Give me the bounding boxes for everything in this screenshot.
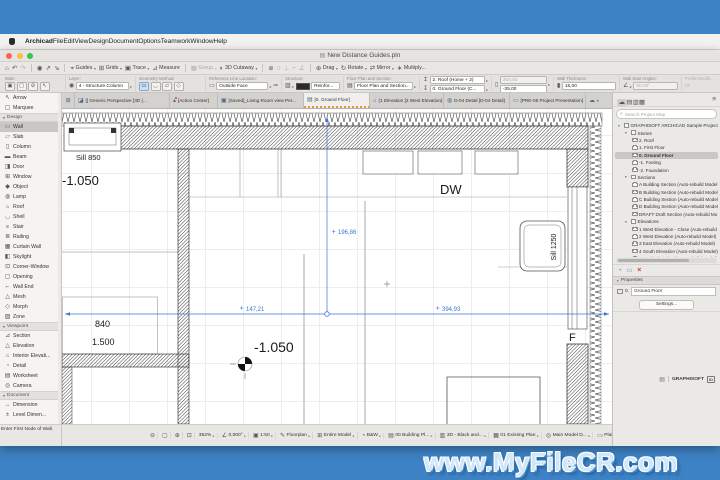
toolbar-item-separator[interactable] — [185, 64, 186, 72]
collapse-caret-icon: ▾ — [617, 279, 619, 283]
toolbar-item-favorites[interactable]: ◉ — [37, 65, 43, 72]
tool-icon: ◍ — [4, 194, 11, 200]
archicad-window: ▤New Distance Guides.pln ⌂ ↶ ↷ ◉ — [0, 50, 720, 446]
left-column: ↖ Arrow ▢ Marquee ▾ Design ▭ — [0, 93, 62, 446]
folder-icon — [632, 183, 638, 187]
chevron-icon: ▸ — [308, 434, 310, 438]
quick-option-layer-combination[interactable]: ▤ 00 Building Pl... ▸ — [386, 432, 435, 439]
settings-row: Settings... — [613, 298, 720, 311]
main-tool-suspend-groups[interactable]: ⊘ — [28, 82, 38, 91]
properties-header[interactable]: ▾ Properties — [613, 276, 720, 285]
chevron-icon: ▸ — [484, 434, 486, 438]
toolbar-item-guides[interactable]: ⌖ Guides ▾ — [70, 65, 95, 72]
folder-icon — [632, 161, 638, 165]
quick-option-structure-display[interactable]: ⊞ Entire Model ▸ — [315, 432, 357, 439]
toolbar-icon: ⊕ — [316, 65, 321, 72]
tree-item-elev-west[interactable]: 2 West Elevation (Auto-rebuild Model) — [615, 233, 718, 240]
tool-arrow[interactable]: ↖ Arrow — [0, 93, 61, 103]
menu-teamwork[interactable]: Teamwork — [161, 38, 191, 45]
toolbar-item-find-select[interactable]: ◌ — [277, 65, 281, 72]
menu-view[interactable]: View — [75, 38, 89, 45]
toolbar-icon: ⌂ — [5, 65, 9, 72]
tree-item-elev-west-close[interactable]: 1 West Elevation - Close (Auto-rebuild I — [615, 225, 718, 232]
left-dimension: 147,21 — [246, 307, 265, 313]
thickness-field[interactable]: 15,00 — [562, 82, 616, 90]
tree-item-story-footing[interactable]: -1. Footing — [615, 159, 718, 166]
tree-item-section-d[interactable]: D Building Section (Auto-rebuild Model — [615, 203, 718, 210]
quick-option-orientation[interactable]: ∠ 0,000° ▸ — [220, 432, 249, 439]
tree-item-sections[interactable]: ▾ Sections — [615, 174, 718, 181]
quick-option-dimension-style[interactable]: ▭ Plain Millimeter ▸ — [595, 432, 612, 439]
tool-roof[interactable]: ⌂ Roof — [0, 202, 61, 212]
menu-archicad[interactable]: Archicad — [25, 38, 53, 45]
tool-icon: ◧ — [4, 254, 11, 260]
project-map-tree: ▾ GRAPHISOFT ARCHICAD Sample Project - H… — [613, 121, 720, 257]
toolbar-item-separator[interactable] — [31, 64, 32, 72]
main-tool-arrow-tool[interactable]: ↖ — [40, 82, 50, 91]
macos-menu-bar: ArchicadFileEditViewDesignDocumentOption… — [0, 34, 720, 50]
navigator-action-viewpoint-settings[interactable]: ◔ — [618, 268, 622, 274]
story-folder-icon — [617, 289, 623, 294]
tool-icon: ▤ — [4, 373, 11, 379]
quick-option-renovation-filter[interactable]: ◔ B&W ▸ — [360, 433, 385, 439]
tool-icon: ◆ — [4, 184, 11, 190]
structure-select[interactable]: Reinfor... — [311, 82, 340, 90]
elevation-offset-icon: ▯ — [495, 82, 498, 88]
chevron-down-icon: ▾ — [336, 66, 338, 71]
tool-lamp[interactable]: ◍ Lamp — [0, 192, 61, 202]
main-toolbar: ⌂ ↶ ↷ ◉ ⇗ — [0, 62, 720, 75]
toolbar-item-link[interactable]: ⊚ — [268, 65, 273, 72]
tab-tab-list-dropdown[interactable]: ☁ ▾ — [586, 93, 606, 108]
tree-item-story-first-floor[interactable]: 1. First Floor — [615, 144, 718, 151]
tool-shell[interactable]: ◡ Shell — [0, 212, 61, 222]
tool-detail[interactable]: ◔ Detail — [0, 361, 61, 371]
upper-cabinets — [363, 151, 518, 174]
brand-label: GRAPHISOFT — [672, 377, 704, 382]
layer-select[interactable]: 4 - Structure.Column — [76, 82, 129, 90]
tool-icon: ◎ — [4, 383, 11, 389]
tab-icon: ▤ — [307, 97, 312, 103]
toolbar-icon: ∠ — [299, 65, 305, 72]
tab-tab-living-room-view[interactable]: ▣ [Saved]_Living Room view Per... — [218, 93, 304, 108]
search-icon: ⌕ — [620, 111, 623, 117]
tool-icon: ⌂ — [4, 353, 11, 359]
tab-tab-ground-floor[interactable]: ▤ [0. Ground Floor] — [304, 93, 370, 108]
settings-button[interactable]: Settings... — [639, 300, 694, 310]
toolbar-item-mirror[interactable]: ⇄ Mirror ▾ — [370, 65, 394, 72]
geometry-curved[interactable]: ◡ — [151, 82, 161, 91]
quick-option-icon: ◎ — [546, 432, 551, 439]
top-story-select[interactable]: 2. Roof (Home + 2) — [430, 76, 485, 84]
tree-item-story-ground-floor[interactable]: 0. Ground Floor — [615, 152, 718, 159]
tree-item-elev-east[interactable]: 3 East Elevation (Auto-rebuild Model) — [615, 240, 718, 247]
toolbar-icon: ⌖ — [70, 65, 74, 72]
tab-icon: ◪ — [78, 98, 83, 104]
quick-option-zoom-window[interactable]: ▢ — [160, 432, 171, 439]
eye-icon[interactable]: ◉ — [69, 83, 74, 89]
tree-item-section-c[interactable]: C Building Section (Auto-rebuild Model — [615, 196, 718, 203]
toolbar-item-guide-angle[interactable]: ∠ — [299, 65, 305, 72]
quick-option-icon: ▢ — [162, 432, 168, 439]
toolbar-item-separator[interactable] — [310, 64, 311, 72]
tree-caret-icon: ▾ — [625, 175, 629, 179]
search-input[interactable] — [625, 112, 713, 117]
tool-icon: ↖ — [4, 95, 11, 101]
quick-option-graphic-override[interactable]: ◎ Main Model D... ▸ — [544, 432, 593, 439]
chevron-down-icon: ▾ — [147, 66, 149, 71]
tree-item-section-b[interactable]: B Building Section (Auto-rebuild Model — [615, 189, 718, 196]
toolbar-icon: ↷ — [20, 65, 25, 72]
toolbar-icon: ⊞ — [99, 65, 104, 72]
minimize-button[interactable] — [17, 53, 23, 59]
tree-item-elevations[interactable]: ▾ Elevations — [615, 218, 718, 225]
folder-icon — [631, 131, 637, 135]
tree-horizontal-scrollbar[interactable] — [616, 258, 717, 263]
interior-wall — [178, 149, 189, 424]
dim-840-label: 840 — [95, 319, 110, 329]
apple-icon[interactable] — [9, 38, 15, 45]
chevron-icon: ▸ — [486, 78, 488, 83]
toolbar-icon: ⊚ — [268, 65, 273, 72]
composite-icon[interactable]: ▥ — [285, 83, 291, 89]
toolbar-icon: ↶ — [12, 65, 17, 72]
toolbar-item-guide-segment[interactable]: ⊥ — [284, 65, 290, 72]
tool-icon: ▦ — [4, 244, 11, 250]
right-insulation — [590, 126, 601, 424]
tree-item-section-a[interactable]: A Building Section (Auto-rebuild Model — [615, 181, 718, 188]
top-offset-field[interactable]: 303,00 — [500, 76, 547, 84]
crosshair-cursor — [384, 281, 390, 287]
infobox-bottom-top: Bottom and Top: ▯ 303,00 -35,00 ▸ — [492, 76, 554, 91]
quick-option-zoom-level[interactable]: 352% ▸ — [197, 433, 218, 438]
tool-object[interactable]: ◆ Object — [0, 182, 61, 192]
tool-icon: ◔ — [4, 363, 11, 369]
structure-preview — [296, 83, 310, 90]
tool-morph[interactable]: ◇ Morph — [0, 302, 61, 312]
navigator-footer: ▤ GRAPHISOFT ID — [613, 311, 720, 446]
tool-viewpoint-section[interactable]: ▾ Viewpoint — [0, 322, 61, 331]
toolbar-icon: ↻ — [341, 65, 346, 72]
tool-dimension[interactable]: ↔ Dimension — [0, 400, 61, 410]
tree-caret-icon: ▾ — [625, 131, 629, 135]
right-dimension: 394,93 — [442, 307, 461, 313]
tool-mesh[interactable]: △ Mesh — [0, 292, 61, 302]
toolbar-item-undo[interactable]: ↶ — [12, 65, 17, 72]
chevron-icon: ▸ — [292, 84, 294, 89]
main-area: ↖ Arrow ▢ Marquee ▾ Design ▭ — [0, 93, 720, 446]
quick-option-zoom-out[interactable]: ⊖ — [148, 432, 158, 439]
tab-icon: ▭ — [513, 98, 518, 104]
tool-beam[interactable]: ▬ Beam — [0, 152, 61, 162]
tool-opening[interactable]: ▢ Opening — [0, 272, 61, 282]
quick-option-icon: ▦ — [493, 432, 499, 439]
folder-icon — [632, 168, 638, 172]
dim-1500-label: 1.500 — [92, 337, 115, 347]
quick-option-icon: ▤ — [388, 432, 394, 439]
angle-field[interactable]: 90,00° — [633, 82, 678, 90]
tool-door[interactable]: ◨ Door — [0, 162, 61, 172]
tool-icon: ◨ — [4, 164, 11, 170]
folder-icon — [632, 227, 638, 231]
geometry-straight[interactable]: ▭ — [139, 82, 149, 91]
title-bar[interactable]: ▤New Distance Guides.pln — [0, 50, 720, 62]
menu-document[interactable]: Document — [109, 38, 139, 45]
chevron-icon: ▸ — [353, 434, 355, 438]
navigator-header: ☁▤▥▦ ≡ — [613, 93, 720, 107]
story-name-field[interactable] — [631, 287, 716, 296]
toolbar-item-3d-cutaway[interactable]: ◐ 3D Cutaway ▾ — [220, 65, 258, 72]
tool-icon: ≣ — [4, 234, 11, 240]
tool-icon: ⊞ — [4, 174, 11, 180]
tab-tab-d04-detail[interactable]: ◍ D-04 Detail [D-04 Detail] — [444, 93, 510, 108]
toolbar-item-measure[interactable]: ⊿ Measure — [152, 65, 180, 72]
id-badge: ID — [707, 376, 715, 383]
navigator-action-delete[interactable]: × — [637, 267, 641, 274]
toolbar-icon: ◉ — [37, 65, 43, 72]
tree-caret-icon: ▾ — [625, 220, 629, 224]
quick-option-icon: ▥ — [440, 432, 446, 439]
tool-camera[interactable]: ◎ Camera — [0, 381, 61, 391]
toolbar-item-trace[interactable]: ▣ Trace ▾ — [125, 65, 149, 72]
floor-plan-canvas[interactable]: 196,86 147,21 394,93 Sill 850 -1.050 840… — [62, 109, 612, 424]
quick-option-floor-plan-cut-plane[interactable]: ✎ Floorplan ▸ — [278, 432, 313, 439]
level-left-label: -1.050 — [62, 173, 99, 188]
tab-icon: ▣ — [221, 98, 226, 104]
quick-option-zoom-in[interactable]: ⊕ — [173, 432, 183, 439]
toolbar-icon: ⊿ — [152, 65, 157, 72]
tab-tab-west-elevation[interactable]: ⌂ (1 Elevation [2 West Elevation] — [370, 93, 444, 108]
tab-icon: ☁ — [589, 98, 595, 104]
close-button[interactable] — [6, 53, 12, 59]
top-wall — [120, 126, 588, 149]
toolbar-item-guide-corner[interactable]: ⌐ — [292, 65, 296, 72]
tree-item-elev-north[interactable]: 5 North Elevation (Auto-rebuild Model) — [615, 255, 718, 257]
quick-option-icon: ⊡ — [187, 432, 192, 439]
tool-stair[interactable]: ≡ Stair — [0, 222, 61, 232]
navigator-palette: ☁▤▥▦ ≡ ⌕ ▾ GRAPHISOFT ARCHICAD Sample Pr… — [612, 93, 720, 446]
tool-document-section[interactable]: ▾ Document — [0, 391, 61, 400]
chevron-icon: ▸ — [486, 87, 488, 92]
tab-tab-pre05-presentation[interactable]: ▭ [PRE-05 Project Presentation] — [510, 93, 586, 108]
tool-icon: ⊿ — [4, 333, 11, 339]
watermark: www.MyFileCR.com — [424, 447, 678, 478]
tool-corner-window[interactable]: ⊡ Corner-Window — [0, 262, 61, 272]
right-wall-top — [567, 149, 588, 187]
toolbar-icon: ⇄ — [370, 65, 375, 72]
toolbar-icon: ◐ — [220, 65, 224, 72]
chevron-icon: ▸ — [213, 434, 215, 438]
chevron-down-icon: ▾ — [365, 66, 367, 71]
toolbar-icon: ⌐ — [292, 65, 296, 72]
tree-item-project-root[interactable]: ▾ GRAPHISOFT ARCHICAD Sample Project - H — [615, 122, 718, 129]
tool-wall[interactable]: ▭ Wall — [0, 122, 61, 132]
reference-line-select[interactable]: Outside Face — [216, 82, 268, 90]
tool-railing[interactable]: ≣ Railing — [0, 232, 61, 242]
quick-option-scale[interactable]: ▣ 1:50 ▸ — [251, 432, 276, 439]
section-caret-icon: ▾ — [3, 324, 5, 329]
sink — [520, 221, 565, 271]
folder-icon — [631, 175, 637, 179]
toolbar-item-rotate[interactable]: ↻ Rotate ▾ — [341, 65, 367, 72]
tool-window[interactable]: ⊞ Window — [0, 172, 61, 182]
infobox-main: Main: ▣▢⊘↖ — [2, 76, 66, 91]
toolbar-icon: ▦ — [191, 65, 197, 72]
chevron-icon: ▸ — [130, 84, 132, 89]
level-center-label: -1.050 — [254, 339, 294, 355]
toolbox-scrollbar[interactable] — [58, 93, 61, 424]
chevron-down-icon: ▾ — [120, 66, 122, 71]
toolbar-icon: ⇘ — [54, 65, 59, 72]
bottom-offset-field[interactable]: -35,00 — [500, 85, 547, 93]
tool-icon: △ — [4, 294, 11, 300]
folder-icon — [632, 190, 638, 194]
sill-850-label: Sill 850 — [76, 153, 101, 162]
toolbar-item-pick-up-parameters[interactable]: ⇗ — [46, 65, 51, 72]
navigator-mode-teamwork-palette[interactable]: ☁ — [617, 99, 627, 106]
tool-icon: ⊡ — [4, 264, 11, 270]
quick-option-icon: ▣ — [253, 432, 259, 439]
tree-item-story-foundation[interactable]: -2. Foundation — [615, 166, 718, 173]
tool-design-section[interactable]: ▾ Design — [0, 113, 61, 122]
chevron-icon: ▸ — [537, 434, 539, 438]
navigator-mode-layout-book[interactable]: ▦ — [639, 99, 645, 106]
chevron-down-icon: ▾ — [392, 66, 394, 71]
infobox-profile: Profile Modifi... ▱ — [682, 76, 718, 91]
toolbar-item-separator[interactable] — [262, 64, 263, 72]
dishwasher-label: DW — [440, 182, 462, 197]
navigator-menu-icon[interactable]: ≡ — [712, 96, 716, 104]
navigator-action-properties-panel[interactable]: ▭ — [627, 267, 633, 274]
geometry-trapezoid[interactable]: ▱ — [162, 82, 172, 91]
tool-elevation[interactable]: △ Elevation — [0, 341, 61, 351]
right-wall-bottom — [567, 344, 588, 424]
folder-icon — [632, 249, 638, 253]
infobox-reference-line: Reference Line Location: ▭ Outside Face … — [206, 76, 282, 91]
tool-wall-end[interactable]: ⌐ Wall End — [0, 282, 61, 292]
chevron-icon: ▸ — [630, 84, 632, 89]
folder-icon — [632, 146, 638, 150]
bottom-right-object — [447, 377, 540, 424]
quick-option-icon: ✎ — [280, 432, 285, 439]
tool-skylight[interactable]: ◧ Skylight — [0, 252, 61, 262]
tool-section[interactable]: ⊿ Section — [0, 331, 61, 341]
tool-curtain-wall[interactable]: ▦ Curtain Wall — [0, 242, 61, 252]
quick-option-fit-in-window[interactable]: ⊡ — [185, 432, 195, 439]
quick-option-model-view-options[interactable]: ▦ 01 Existing Plan ▸ — [491, 432, 542, 439]
menu-window[interactable]: Window — [190, 38, 213, 45]
menu-design[interactable]: Design — [89, 38, 109, 45]
tool-icon: △ — [4, 343, 11, 349]
chevron-icon: ▸ — [244, 434, 246, 438]
tree-item-story-roof[interactable]: 2. Roof — [615, 137, 718, 144]
toolbar-item-multiply[interactable]: ∗ Multiply... — [397, 65, 426, 72]
tool-icon: ◇ — [4, 304, 11, 310]
main-tool-favorites[interactable]: ▢ — [17, 82, 27, 91]
tab-tab-overview[interactable]: ⊞ — [62, 93, 75, 108]
infobox-linked-stories: Linked Stories: ↥ 2. Roof (Home + 2) ▸ ↧… — [420, 76, 492, 91]
quick-option-pen-set[interactable]: ▥ 3D - Black and... ▸ — [438, 432, 490, 439]
bottom-left-wall — [62, 354, 189, 367]
infobox-geometry-method: Geometry Method: ▭◡▱◇ — [136, 76, 206, 91]
toolbar-item-home[interactable]: ⌂ — [5, 65, 9, 72]
tool-zone[interactable]: ▧ Zone — [0, 312, 61, 322]
main-tool-wall-default-settings[interactable]: ▣ — [5, 82, 15, 91]
chevron-down-icon: ▾ — [597, 98, 599, 103]
tool-interior-elevation[interactable]: ⌂ Interior Elevati... — [0, 351, 61, 361]
geometry-polygonal[interactable]: ◇ — [174, 82, 184, 91]
tree-item-elev-south[interactable]: 4 South Elevation (Auto-rebuild Model) — [615, 248, 718, 255]
bottom-story-select[interactable]: 0. Ground Floor (C... — [430, 85, 485, 93]
floorplan-section-button[interactable]: Floor Plan and Section... — [354, 82, 412, 90]
tool-column[interactable]: ▯ Column — [0, 142, 61, 152]
zoom-button[interactable] — [27, 53, 33, 59]
folder-icon — [631, 220, 637, 224]
tool-marquee[interactable]: ▢ Marquee — [0, 103, 61, 113]
desktop: { "desktop": {"watermark": "www.MyFileCR… — [0, 0, 720, 480]
chevron-icon: ▸ — [431, 434, 433, 438]
tool-icon: ◡ — [4, 214, 11, 220]
chevron-icon: ▸ — [379, 434, 381, 438]
folder-icon — [632, 198, 638, 202]
tool-worksheet[interactable]: ▤ Worksheet — [0, 371, 61, 381]
floor-plan-drawing: 196,86 147,21 394,93 Sill 850 -1.050 840… — [62, 109, 612, 424]
toolbar-item-grids[interactable]: ⊞ Grids ▾ — [99, 65, 122, 72]
toolbar-icon: ◌ — [277, 65, 281, 72]
tool-icon: ▢ — [4, 105, 11, 111]
tool-slab[interactable]: ▱ Slab — [0, 132, 61, 142]
section-caret-icon: ▾ — [3, 393, 5, 398]
quick-option-icon: ⊖ — [150, 432, 155, 439]
floorplan-icon: ▤ — [347, 83, 353, 89]
menu-help[interactable]: Help — [214, 38, 227, 45]
quick-option-icon: ⊕ — [175, 432, 180, 439]
tool-level-dimension[interactable]: ± Level Dimen... — [0, 410, 61, 420]
menu-file[interactable]: File — [53, 38, 63, 45]
tool-icon: ⌐ — [4, 284, 11, 290]
tree-item-stories[interactable]: ▾ Stories — [615, 129, 718, 136]
tab-icon: ⌂ — [373, 98, 377, 104]
chevron-icon: ▸ — [588, 434, 590, 438]
chevron-down-icon: ▾ — [255, 66, 257, 71]
menu-options[interactable]: Options — [138, 38, 160, 45]
toolbar-item-inject-parameters[interactable]: ⇘ — [54, 65, 59, 72]
toolbar-item-group[interactable]: ▦ Group ▾ — [191, 65, 217, 72]
tree-item-section-draft[interactable]: DRAFT Draft Section (Auto-rebuild Mo — [615, 211, 718, 218]
vertical-dimension: 196,86 — [338, 230, 357, 236]
top-left-window — [64, 123, 121, 151]
tool-icon: ↔ — [4, 402, 11, 408]
infobox-wall-start-angles: Wall Start Angles: ∠ ▸ 90,00° — [620, 76, 682, 91]
top-link-icon: ↥ — [423, 77, 428, 83]
quick-option-icon: ◔ — [362, 433, 366, 439]
menu-edit[interactable]: Edit — [63, 38, 74, 45]
sill-1250-label: Sill 1250 — [551, 233, 558, 260]
dimension-node[interactable] — [325, 312, 330, 317]
reference-line-icon: ▭ — [209, 83, 215, 89]
toolbar-item-separator[interactable] — [64, 64, 65, 72]
search-field[interactable]: ⌕ — [616, 109, 717, 119]
tab-tab-action-center[interactable]: ▴ [Action Center] — [170, 93, 218, 108]
chevron-icon: ▸ — [414, 84, 416, 89]
toolbar-item-drag[interactable]: ⊕ Drag ▾ — [316, 65, 338, 72]
infobox-wall-thickness: Wall Thickness: ▮ 15,00 — [554, 76, 620, 91]
info-box: Main: ▣▢⊘↖ Layer: ◉ 4 - Structure.Column… — [0, 75, 720, 93]
tab-tab-generic-perspective[interactable]: ◪ [] Generic Perspective [3D (... — [75, 93, 170, 108]
toolbar-item-redo[interactable]: ↷ — [20, 65, 25, 72]
flip-icon[interactable]: ⇒ — [273, 83, 278, 89]
toolbar-icon: ⊥ — [284, 65, 290, 72]
